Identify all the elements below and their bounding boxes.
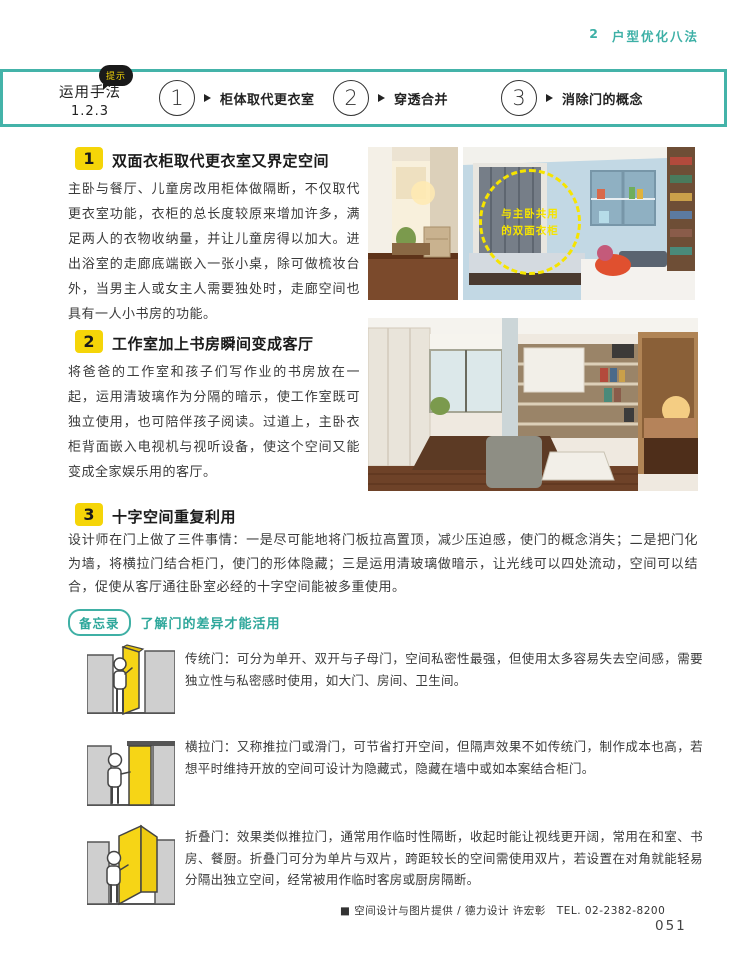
- section-2-title: 工作室加上书房瞬间变成客厅: [112, 333, 314, 354]
- memo-item-folding-door: 折叠门：效果类似推拉门，通常用作临时性隔断，收起时能让视线更开阔，常用在和室、书…: [185, 826, 703, 891]
- memo-title: 了解门的差异才能活用: [141, 613, 281, 632]
- annotation-line-1: 与主卧共用: [501, 206, 559, 221]
- sliding-door-icon: [87, 730, 175, 808]
- step-number-circle: 3: [501, 80, 537, 116]
- design-credit: ■ 空间设计与图片提供 / 德力设计 许宏彰 TEL. 02-2382-8200: [340, 903, 665, 918]
- sliding-door-illustration: [87, 730, 175, 808]
- arrow-right-icon: [204, 94, 211, 102]
- section-1-number: 1: [75, 147, 103, 170]
- memo-item-sliding-door: 横拉门：又称推拉门或滑门，可节省打开空间，但隔声效果不如传统门，制作成本也高，若…: [185, 736, 703, 779]
- folding-door-icon: [87, 820, 175, 908]
- chapter-header: 2 户型优化八法: [589, 26, 699, 45]
- arrow-right-icon: [378, 94, 385, 102]
- method-step-2: 2 穿透合并: [333, 72, 448, 124]
- traditional-door-illustration: [87, 644, 175, 716]
- arrow-right-icon: [546, 94, 553, 102]
- hallway-photo-art: [368, 147, 458, 300]
- photo-kids-room: 与主卧共用 的双面衣柜: [463, 147, 695, 300]
- step-label: 消除门的概念: [562, 89, 643, 108]
- memo-header: 备忘录 了解门的差异才能活用: [68, 609, 281, 636]
- section-3-body: 设计师在门上做了三件事情：一是尽可能地将门板拉高置顶，减少压迫感，使门的概念消失…: [68, 529, 698, 600]
- page-number: 051: [655, 918, 687, 934]
- chapter-title: 户型优化八法: [612, 26, 699, 45]
- method-step-1: 1 柜体取代更衣室: [159, 72, 315, 124]
- step-label: 柜体取代更衣室: [220, 89, 315, 108]
- book-page: 2 户型优化八法 提示 运用手法 1.2.3 1 柜体取代更衣室 2 穿透合并 …: [0, 0, 749, 965]
- section-2-body: 将爸爸的工作室和孩子们写作业的书房放在一起，运用清玻璃作为分隔的暗示，使工作室既…: [68, 360, 360, 485]
- step-label: 穿透合并: [394, 89, 448, 108]
- swing-door-icon: [87, 644, 175, 716]
- section-3-title: 十字空间重复利用: [112, 506, 236, 527]
- study-photo-art: [368, 318, 698, 491]
- section-3-number: 3: [75, 503, 103, 526]
- photo-annotation-circle: 与主卧共用 的双面衣柜: [479, 169, 581, 275]
- step-number-circle: 2: [333, 80, 369, 116]
- photo-hallway: [368, 147, 458, 300]
- memo-item-traditional-door: 传统门：可分为单开、双开与子母门，空间私密性最强，但使用太多容易失去空间感，需要…: [185, 648, 703, 691]
- band-heading: 运用手法 1.2.3: [31, 81, 149, 119]
- section-1-body: 主卧与餐厅、儿童房改用柜体做隔断，不仅取代更衣室功能，衣柜的总长度较原来增加许多…: [68, 177, 360, 327]
- memo-badge: 备忘录: [68, 609, 131, 636]
- chapter-number: 2: [589, 26, 600, 45]
- band-subtitle: 1.2.3: [31, 104, 149, 119]
- section-1-title: 双面衣柜取代更衣室又界定空间: [112, 150, 329, 171]
- tip-bubble: 提示: [99, 65, 133, 86]
- section-2-number: 2: [75, 330, 103, 353]
- step-number-circle: 1: [159, 80, 195, 116]
- method-band: 提示 运用手法 1.2.3 1 柜体取代更衣室 2 穿透合并 3 消除门的概念: [0, 69, 727, 127]
- annotation-line-2: 的双面衣柜: [501, 223, 559, 238]
- band-title: 运用手法: [31, 81, 149, 102]
- method-step-3: 3 消除门的概念: [501, 72, 643, 124]
- photo-study-room: [368, 318, 698, 491]
- folding-door-illustration: [87, 820, 175, 908]
